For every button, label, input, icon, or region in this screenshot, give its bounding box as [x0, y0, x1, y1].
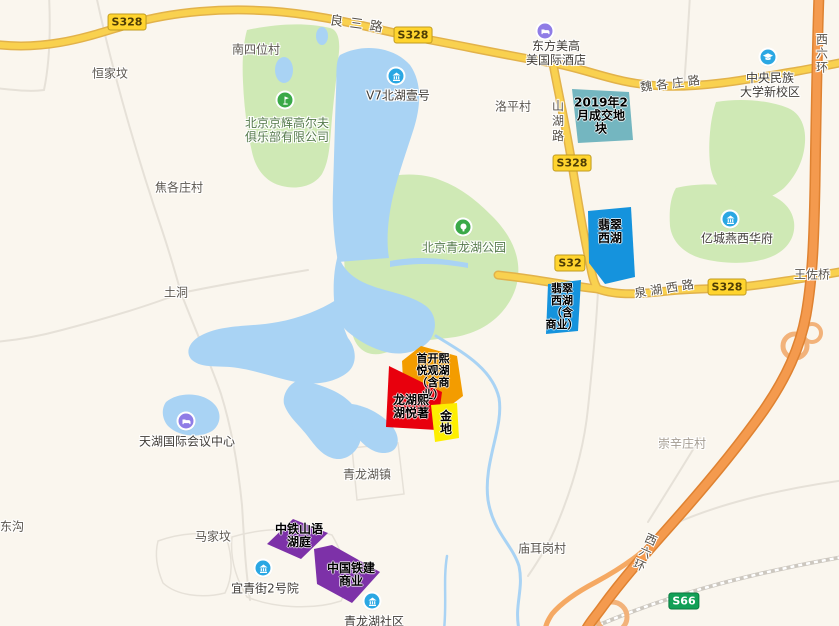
parcel-label-line: 商业	[327, 575, 375, 588]
poi-label-tianhu-center[interactable]: 天湖国际会议中心	[139, 433, 235, 450]
building-icon[interactable]	[256, 561, 271, 576]
river-small	[444, 556, 447, 626]
road-label-xiliuhuan-north: 西六环	[814, 33, 831, 75]
poi-label-line: 东方美高	[526, 39, 586, 53]
parcel-label-line: 湖悦著	[393, 407, 429, 420]
village-label-majiafen: 马家坟	[195, 528, 231, 545]
parcel-label-line: 西湖	[598, 232, 622, 245]
poi-label-qinglonghu-park[interactable]: 北京青龙湖公园	[422, 239, 506, 256]
map-canvas[interactable]: S328 S328 S328 S32 S328 S66 良三路 魏各庄路 泉湖西…	[0, 0, 839, 626]
hotel-icon[interactable]	[538, 24, 553, 39]
parcel-label-feicui-xihu[interactable]: 翡翠 西湖	[598, 219, 622, 245]
road-label-shanhulu: 山湖路	[550, 100, 567, 145]
badge-s328-3: S328	[553, 155, 592, 172]
parcel-label-jindi[interactable]: 金 地	[440, 410, 452, 436]
poi-label-v7-beihu[interactable]: V7北湖壹号	[366, 87, 430, 104]
village-label-chongxinzhuang: 崇辛庄村	[658, 435, 706, 452]
village-label-luoping: 洛平村	[495, 98, 531, 115]
tree-icon[interactable]	[456, 220, 471, 235]
town-label-qinglonghuzhen: 青龙湖镇	[343, 466, 391, 483]
parcel-label-longhu-xihu[interactable]: 龙湖熙 湖悦著	[393, 394, 429, 420]
poi-label-golf-club[interactable]: 北京京辉高尔夫 俱乐部有限公司	[245, 116, 329, 144]
green-areas	[243, 24, 805, 354]
village-label-jiaogezhuang: 焦各庄村	[155, 179, 203, 196]
badge-s328-partial: S32	[554, 255, 585, 272]
poi-label-line: 北京京辉高尔夫	[245, 116, 329, 130]
parcel-label-deal-2019[interactable]: 2019年2 月成交地 块	[574, 97, 628, 136]
village-label-hengjiafen: 恒家坟	[92, 65, 128, 82]
poi-label-yiqingjie[interactable]: 宜青街2号院	[231, 580, 299, 597]
label-wangzuoqiao: 王佐桥	[794, 266, 830, 283]
village-label-tudong: 土洞	[164, 284, 188, 301]
poi-label-dongfang-hotel[interactable]: 东方美高 美国际酒店	[526, 39, 586, 67]
parcel-label-feicui-xihu-biz[interactable]: 翡翠 西湖 （含 商业）	[546, 283, 579, 331]
parcel-label-line: 地	[440, 423, 452, 436]
parcel-label-line: 商业）	[546, 319, 579, 331]
golf-icon[interactable]	[278, 93, 293, 108]
village-label-miaoergang: 庙耳岗村	[518, 540, 566, 557]
parcel-label-zhongtie-shanyu[interactable]: 中铁山语 湖庭	[275, 523, 323, 549]
parcel-label-line: 块	[574, 123, 628, 136]
badge-s66: S66	[668, 593, 699, 610]
poi-label-qinglonghu-shequ[interactable]: 青龙湖社区	[344, 613, 404, 626]
parcel-label-tiejian-biz[interactable]: 中国铁建 商业	[327, 562, 375, 588]
school-icon[interactable]	[761, 50, 776, 65]
village-label-nansiwei: 南四位村	[232, 41, 280, 58]
poi-label-line: 中央民族	[740, 71, 800, 85]
village-label-donggou: 东沟	[0, 518, 24, 535]
building-icon[interactable]	[389, 69, 404, 84]
badge-s328-1: S328	[108, 14, 147, 31]
badge-s328-4: S328	[708, 279, 747, 296]
poi-label-minzu-university[interactable]: 中央民族 大学新校区	[740, 71, 800, 99]
poi-label-line: 俱乐部有限公司	[245, 130, 329, 144]
poi-label-line: 大学新校区	[740, 85, 800, 99]
building-icon[interactable]	[365, 594, 380, 609]
building-icon[interactable]	[723, 212, 738, 227]
poi-label-yicheng[interactable]: 亿城燕西华府	[701, 230, 773, 247]
parcel-label-line: 湖庭	[275, 536, 323, 549]
badge-s328-2: S328	[394, 27, 433, 44]
hotel-icon[interactable]	[179, 414, 194, 429]
poi-label-line: 美国际酒店	[526, 53, 586, 67]
